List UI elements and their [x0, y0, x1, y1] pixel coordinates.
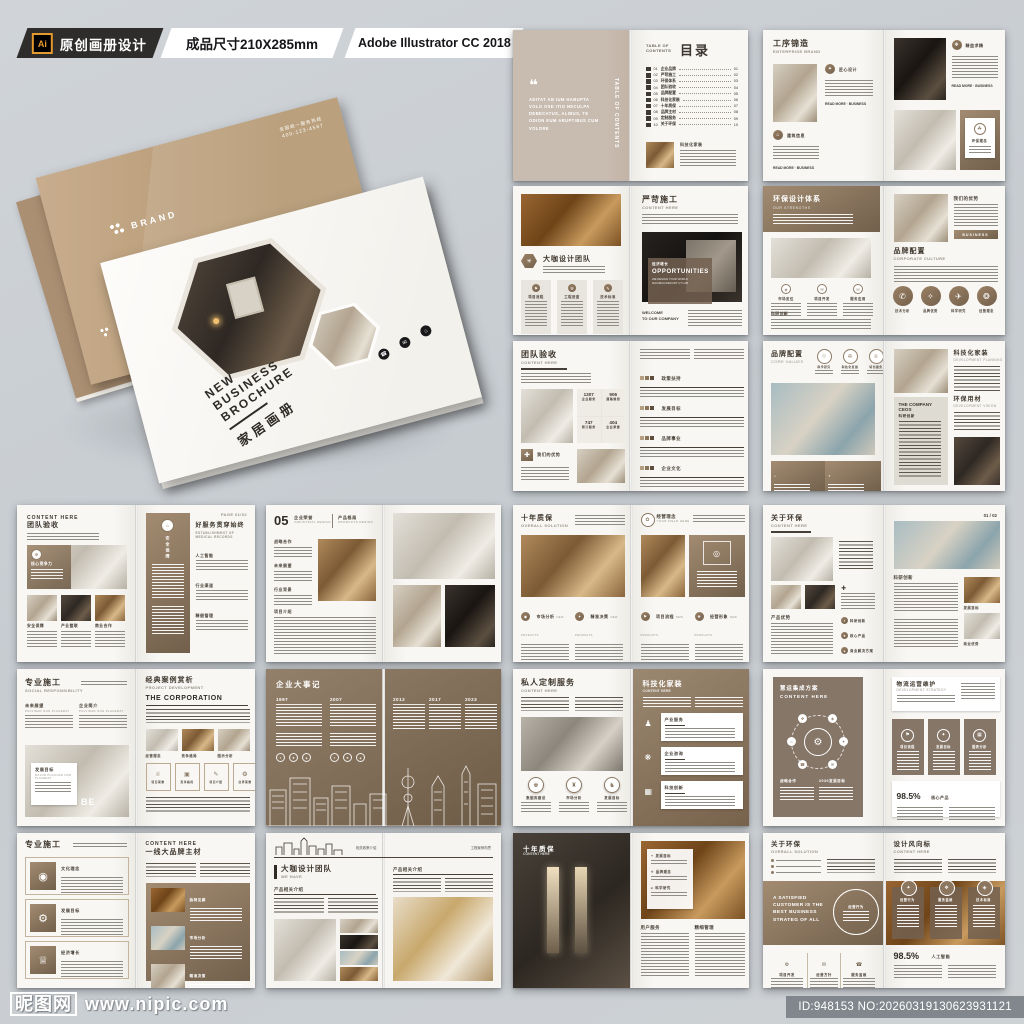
- toc-item-page: 06: [734, 98, 738, 102]
- solution-photo-left: 慧运集成方案 CONTENT HERE ⚙ ✦ ✉ ☎ ⌂ ❖ ◈ 战略合作 2…: [763, 669, 883, 826]
- about-eco-right: 01 / 02 科研创新 发展目标 商业优势: [886, 505, 1006, 662]
- overlay-label-cn: 经济增长: [652, 262, 708, 267]
- photo-thumb-2: [61, 595, 91, 621]
- header-brand-badge: Ai 原创画册设计: [17, 28, 164, 58]
- toc-leader: [679, 106, 731, 107]
- team-title: 大咖设计团队: [543, 256, 591, 264]
- page-number-label: PAGE 01/02: [221, 513, 247, 518]
- brand-culture-page: 我们的优势 BUSINESS 品牌配置 CORPORATE CULTURE ✆技…: [886, 186, 1006, 335]
- toc-leader: [679, 81, 731, 82]
- check-icon: ✦: [651, 854, 654, 858]
- caption-1: 发展目标: [964, 605, 980, 610]
- competitiveness-overlay: ❁ 核心竞争力: [27, 545, 71, 589]
- bullet-item: ✦科研创新: [841, 617, 873, 624]
- content-here-label: CONTENT HERE: [146, 841, 197, 847]
- phone-contact-icon: ☎: [376, 347, 391, 362]
- text-lines: [948, 965, 996, 979]
- city-skyline-art: [266, 760, 501, 826]
- product-intro-label: 产品相关介绍: [393, 867, 422, 873]
- plus-chip: ✚: [521, 449, 533, 461]
- photo-kitchen: [521, 194, 621, 246]
- percent-label: 核心产品: [931, 795, 949, 800]
- dev-icon: ⚙: [785, 962, 789, 968]
- consult-card: 企业咨询: [661, 747, 743, 775]
- cases-subtitle: PROJECT DEVELOPMENT: [146, 686, 204, 691]
- good-service-subtitle: ESTABLISHMENT OF MEDICAL RECORDS: [196, 532, 250, 540]
- toc-item-page: 04: [734, 86, 738, 90]
- section-label: 建筑信息: [787, 133, 805, 139]
- text-lines: [773, 146, 819, 160]
- chart-card: ▦ 图表分析: [964, 719, 996, 775]
- enterprise-title-cn: 工序锦造: [773, 40, 809, 49]
- gear-hub-icon: ⚙: [804, 728, 832, 756]
- header-group-2: 产品格局 PRODUCTS DESIGN: [338, 515, 373, 525]
- cover-hex-photo-frame-art: [226, 277, 264, 320]
- culture-circle: ❂经营理念: [976, 286, 998, 313]
- toc-row-marker: [646, 67, 651, 72]
- header-brand-label: 原创画册设计: [60, 33, 147, 53]
- photo-thumb-3: [95, 595, 125, 621]
- dev-column: ⚙项目开发: [771, 953, 803, 988]
- spread-design-trend: 关于环保 OVERALL SOLUTION A SATISFIED CUSTOM…: [763, 833, 1005, 988]
- header-size-badge: 成品尺寸210X285mm: [161, 28, 344, 58]
- text-lines: [27, 533, 99, 541]
- year-block: 1997: [276, 697, 322, 727]
- toc-row-marker: [646, 85, 651, 90]
- case-label-3: 图示分析: [218, 753, 234, 758]
- positioning-icon: ◈: [781, 284, 791, 294]
- section-number: 05: [274, 513, 288, 528]
- stats-grid: 1307企业服务 906道路规划 747预订服务 404企业荣誉: [577, 389, 625, 443]
- photo-mini-2: [340, 935, 378, 949]
- toc-item-label: 企业品牌: [661, 67, 676, 72]
- management-section-label: 精细管理: [695, 925, 715, 931]
- culture-circle: ✆技术分析: [892, 286, 914, 313]
- trend-left-page: 关于环保 OVERALL SOLUTION A SATISFIED CUSTOM…: [763, 833, 883, 988]
- toc-row-marker: [646, 98, 651, 103]
- research-icon: ♲: [817, 349, 832, 364]
- toc-item-label: 环保体系: [661, 79, 676, 84]
- photo-small-2: [805, 585, 835, 609]
- development-column: ✉ 项目开发: [807, 284, 837, 317]
- dark-feature-page: 十年质保 CONTENT HERE: [513, 833, 630, 988]
- photo-thumb-1: [27, 595, 57, 621]
- text-lines: [152, 564, 184, 598]
- philosophy-icon: ✿: [641, 513, 655, 527]
- toc-row-marker: [646, 92, 651, 97]
- about-eco-left: 关于环保 CONTENT HERE ✚ 产品优势 ✦科研创新 ❖核心产品 ◈商业…: [763, 505, 883, 662]
- brown-side-panel: ☘ 环保理念: [960, 110, 1000, 170]
- overlay-title-en: OPPORTUNITIES: [652, 269, 708, 275]
- toc-item-label: 十年质保: [661, 104, 676, 109]
- satisfied-banner: A SATISFIED CUSTOMER IS THE BEST BUSINES…: [763, 881, 883, 945]
- welcome-label: WELCOMETO OUR COMPANY: [642, 310, 679, 321]
- value-item: ♲科学研究: [815, 349, 833, 376]
- column-label: 项目开发: [807, 296, 837, 301]
- photo-loft-right: [641, 535, 685, 597]
- honor-icon: ♕: [155, 771, 160, 778]
- photo-banquet: [318, 539, 376, 601]
- check-icon: ❖: [651, 870, 654, 874]
- spread-eco-system: 环保设计体系 OUR STRENGTHS ◈ 市场定位 ✉ 项目开发 ☏ 服务应…: [763, 186, 1005, 335]
- text-lines: [521, 467, 569, 481]
- corporation-heading: THE CORPORATION: [146, 695, 223, 702]
- spread-integrated-solution: 慧运集成方案 CONTENT HERE ⚙ ✦ ✉ ☎ ⌂ ❖ ◈ 战略合作 2…: [763, 669, 1005, 826]
- policy-section: 品牌事业: [640, 427, 744, 459]
- management-section-label: 精细管理: [196, 613, 214, 619]
- toc-row-marker: [646, 73, 651, 78]
- text-lines: [641, 933, 689, 977]
- spread-service: CONTENT HERE 团队验收 ❁ 核心竞争力 安全保障 产业整联 商业合作…: [17, 505, 255, 662]
- text-lines: [575, 515, 625, 527]
- goal-icon: ✦: [937, 729, 950, 742]
- dot-icon: [771, 865, 774, 868]
- trend-card: ✦ 经营行为: [892, 887, 924, 939]
- spread-warranty-dark: 十年质保 CONTENT HERE ✦发展目标 ❖品牌理念 ◈科学研究 用户服务…: [513, 833, 749, 988]
- culture-circles: ✆技术分析 ✧品牌优势 ✈科学研究 ❂经营理念: [892, 286, 1002, 313]
- product-intro-label: 产品相关介绍: [274, 887, 303, 893]
- stat-cell: 747预订服务: [577, 417, 601, 444]
- smart-home-subtitle: DEVELOPMENT PLANNING: [954, 359, 1003, 363]
- flow-icon: ⚑: [641, 612, 650, 621]
- toc-title: 目录: [680, 40, 710, 59]
- photo-bright-living: [393, 897, 493, 981]
- nipic-site-name: 昵图网: [10, 992, 77, 1016]
- text-lines: [843, 303, 873, 317]
- warranty-subtitle: OVERALL SOLUTION: [521, 524, 568, 529]
- bullet-list: ✦科研创新 ❖核心产品 ◈商业解决方案: [841, 617, 873, 654]
- decision-icon: ✦: [575, 612, 584, 621]
- text-lines: [543, 266, 605, 275]
- photo-small-1: [771, 585, 801, 609]
- feature-box: ❂业界荣誉: [233, 763, 256, 791]
- pro-cards-page: 专业施工 ◉ 文化理念 ⚙ 发展目标 ♕ 经济增长: [17, 833, 135, 988]
- dot-icon: [771, 871, 774, 874]
- maintain-icon: ☎: [856, 962, 862, 968]
- text-lines: [954, 366, 1000, 392]
- service-circle: ♚ 数据库建设: [521, 777, 551, 812]
- section-label: 企业文化: [661, 466, 681, 471]
- classic-cases-page: 经典案例赏析 PROJECT DEVELOPMENT THE CORPORATI…: [138, 669, 256, 826]
- text-lines: [61, 631, 91, 649]
- medal-icon: ❂: [242, 771, 247, 778]
- core-values-title: 品牌配置: [771, 351, 803, 359]
- industry-card: 产业服务: [661, 713, 743, 741]
- section-label: 发展目标: [661, 406, 681, 411]
- toc-item-label: 品牌主材: [661, 110, 676, 115]
- text-lines: [894, 965, 942, 979]
- text-lines: [949, 807, 995, 821]
- spread-team-acceptance: 团队验收 CONTENT HERE 1307企业服务 906道路规划 747预订…: [513, 341, 748, 491]
- stat-cell: 906道路规划: [602, 389, 626, 416]
- header1-en: INDUSTRIAL DESIGN: [294, 521, 331, 525]
- service-section-label: 用户服务: [641, 925, 661, 931]
- spread-core-values: 品牌配置 CORE VALUES ♲科学研究 ✇科技化发展 ♕特色服务 ⌂ ✦ …: [763, 341, 1005, 491]
- text-lines: [95, 631, 125, 649]
- database-icon: ♚: [528, 777, 544, 793]
- eco-card: ☘ 环保理念: [965, 118, 995, 158]
- warranty-left-page: 十年质保 OVERALL SOLUTION ◉ 市场分析NEW PRODUCTS…: [513, 505, 630, 662]
- toc-item-page: 08: [734, 110, 738, 114]
- culture-circle: ✈科学研究: [948, 286, 970, 313]
- service-column: ☏ 服务应用: [843, 284, 873, 317]
- eco-title-en: OUR STRENGTHS: [773, 206, 870, 210]
- text-lines: [839, 541, 873, 571]
- toc-leader: [679, 118, 731, 119]
- toc-item-no: 05: [654, 92, 658, 96]
- brand-config-subtitle: CORPORATE CULTURE: [894, 257, 946, 262]
- year-block: 2012: [393, 697, 425, 731]
- text-lines: [196, 590, 248, 602]
- toc-item-no: 01: [654, 67, 658, 71]
- culture-circle: ✧品牌优势: [920, 286, 942, 313]
- text-lines: [196, 620, 248, 632]
- text-lines: [894, 859, 942, 873]
- toc-item-no: 06: [654, 98, 658, 102]
- photo-spa: [894, 521, 1000, 569]
- text-lines: [640, 349, 690, 361]
- custom-subtitle: CONTENT HERE: [521, 689, 557, 694]
- read-more-link: READ MORE · BUSINESS: [952, 84, 993, 88]
- text-lines: [897, 695, 955, 703]
- value-item: ✇科技化发展: [841, 349, 859, 376]
- strategy-panel: 物流运营维护 DEVELOPMENT STRATEGY: [892, 677, 1000, 711]
- text-lines: [680, 150, 736, 168]
- pattern-icon: ▣: [184, 771, 190, 778]
- toc-item-label: 严苛施工: [661, 73, 676, 78]
- acceptance-title: 团队验收: [27, 522, 59, 530]
- construction-title-cn: 严苛施工: [642, 196, 678, 205]
- text-lines: [276, 733, 322, 747]
- case-photo-1: [146, 729, 178, 751]
- text-lines: [31, 569, 63, 581]
- read-more-link: READ MORE · BUSINESS: [825, 102, 866, 106]
- check-item: ✦发展目标: [651, 853, 689, 858]
- title-rule: [521, 368, 567, 370]
- analysis-column: ◉ 市场分析NEW PRODUCTS: [521, 605, 569, 662]
- nipic-watermark: 昵图网www.nipic.com: [10, 990, 228, 1016]
- coop-label: 战略合作: [780, 779, 796, 784]
- standard-icon: ✎: [604, 284, 612, 292]
- text-lines: [894, 619, 958, 649]
- text-lines: [597, 301, 619, 327]
- bullet-item: ◈商业解决方案: [841, 647, 873, 654]
- header-divider: [332, 514, 333, 528]
- cover-mockup: BRAND 全国统一服务热线 400-123-4567 ☎ ✉ ⌂ NEW BU…: [28, 92, 504, 504]
- vision-subsection: 未来展望 PULVINAR NON PLACERAT: [25, 703, 75, 729]
- bullet-item: ❖核心产品: [841, 632, 873, 639]
- text-lines: [771, 623, 833, 655]
- text-lines: [819, 787, 853, 801]
- text-lines: [146, 863, 196, 877]
- year-block: 2017: [429, 697, 461, 731]
- eco-material-subtitle: DEVELOPMENT VISION: [954, 405, 997, 409]
- stat-cell: 1307企业服务: [577, 389, 601, 416]
- photo-wood-kitchen: ✦发展目标 ❖品牌理念 ◈科学研究: [641, 841, 745, 919]
- maintain-column: ☎服务监维: [843, 953, 875, 988]
- text-lines: [952, 56, 998, 78]
- image-icon: ❖: [695, 612, 704, 621]
- opportunities-overlay: 经济增长 OPPORTUNITIES WE DESIGN YOUR WORLD …: [648, 258, 712, 304]
- team-intro-right: 产品相关介绍: [385, 833, 501, 988]
- team-intro-left: 大咖设计团队 WE HAVE 产品相关介绍: [266, 833, 382, 988]
- photo-studio-desk: [274, 919, 336, 981]
- brand-dots-logo: [108, 221, 128, 241]
- strategy-wheel: 经营行为: [833, 889, 879, 935]
- title-rule: [771, 531, 811, 533]
- photo-staircase: [521, 389, 573, 443]
- text-lines: [773, 214, 853, 226]
- company-title: THE COMPANY CEOS: [899, 402, 943, 412]
- toc-item-page: 02: [734, 73, 738, 77]
- section-rule: [640, 447, 744, 448]
- wall-slat-glow: [575, 867, 587, 953]
- text-lines: [146, 797, 250, 813]
- industry-icon: ♟: [645, 719, 652, 728]
- toc-rows: 01企业品牌01 02严苛施工02 03环保体系03 04团队验收04 05品牌…: [646, 66, 738, 128]
- column-label: 市场定位: [771, 296, 801, 301]
- solution-photo-right: 物流运营维护 DEVELOPMENT STRATEGY ⚑ 项目流程 ✦ 发展目…: [886, 669, 1006, 826]
- text-lines: [328, 898, 378, 914]
- toc-item-no: 08: [654, 110, 658, 114]
- text-lines: [695, 933, 745, 977]
- text-lines: [330, 733, 376, 747]
- photo-side-2: [964, 613, 1000, 639]
- smart-home-title: 科技化家装: [954, 351, 989, 358]
- photo-wood-band: ✦ 经营行为 ❖ 服务监维 ◈ 技术标准: [886, 881, 1006, 945]
- text-lines: [697, 571, 737, 589]
- spread-custom-service: 私人定制服务 CONTENT HERE ♚ 数据库建设 ♜ 市场分析 ♞ 发展目…: [513, 669, 749, 826]
- spread-brand-materials: 专业施工 ◉ 文化理念 ⚙ 发展目标 ♕ 经济增长 CONTENT HERE 一…: [17, 833, 255, 988]
- policy-section: 政策扶持: [640, 367, 744, 399]
- swatch-row: [640, 376, 654, 380]
- section-label: 匠心设计: [839, 67, 857, 73]
- cases-title: 经典案例赏析: [146, 677, 194, 685]
- card-circle-icon: ✦: [901, 880, 917, 896]
- core-values-subtitle: CORE VALUES: [771, 360, 804, 365]
- photo-stair-living: [771, 238, 871, 278]
- research-label: 科研创新: [894, 575, 914, 581]
- wheel-label: 经营行为: [848, 904, 864, 909]
- image-id-badge: ID:948153 NO:20260319130623931121: [786, 996, 1024, 1018]
- case-photo-2: [182, 729, 214, 751]
- toc-item-page: 05: [734, 92, 738, 96]
- banner-text: A SATISFIED CUSTOMER IS THE BEST BUSINES…: [773, 895, 825, 924]
- solution-title-cn: 慧运集成方案: [780, 684, 856, 692]
- vision-section: 未来展望: [274, 563, 312, 583]
- text-lines: [643, 697, 691, 707]
- materials-panel: 独特见解 市场分析 精准决策: [146, 883, 250, 981]
- service-circle: ♜ 市场分析: [559, 777, 589, 812]
- toc-row-marker: [646, 123, 651, 128]
- trophy-icon: ♕: [30, 946, 56, 974]
- text-lines: [948, 859, 996, 873]
- thumb-label-3: 商业合作: [95, 624, 112, 629]
- node-icon: ✉: [828, 760, 837, 769]
- toc-leader: [679, 112, 731, 113]
- analysis-icon: ◉: [521, 612, 530, 621]
- brand-config-title: 品牌配置: [894, 248, 926, 256]
- value-item: ♕特色服务: [867, 349, 883, 376]
- photo-dining: [773, 64, 817, 122]
- web-contact-icon: ⌂: [418, 323, 433, 338]
- toc-item-no: 02: [654, 73, 658, 77]
- spread-warranty: 十年质保 OVERALL SOLUTION ◉ 市场分析NEW PRODUCTS…: [513, 505, 749, 662]
- tech-icon: ✇: [843, 349, 858, 364]
- service-icon: ☏: [853, 284, 863, 294]
- section-rule: [274, 894, 376, 895]
- check-item: ◈科学研究: [651, 885, 689, 890]
- photo-dark-bedroom: [954, 437, 1000, 485]
- material-photo: [151, 926, 185, 950]
- toc-item-label: 团队验收: [661, 85, 676, 90]
- toc-item-page: 07: [734, 104, 738, 108]
- process-icon: ⚑: [532, 284, 540, 292]
- bullet-icon: ◈: [841, 647, 848, 654]
- year-block: 2007: [330, 697, 376, 727]
- overlay-label: 核心竞争力: [31, 562, 67, 567]
- mail-contact-icon: ✉: [397, 335, 412, 350]
- read-more-link: READ MORE · BUSINESS: [773, 166, 814, 170]
- header-software-badge: Adobe Illustrator CC 2018: [345, 28, 524, 58]
- photo-bedroom: [894, 194, 948, 242]
- text-lines: [152, 606, 184, 636]
- section-label: 政策扶持: [661, 376, 681, 381]
- badge-box: ◎: [703, 541, 731, 565]
- brand-dots-logo-small: [99, 326, 114, 341]
- percent-value: 98.5%: [897, 791, 921, 801]
- text-lines: [274, 617, 376, 655]
- text-lines: [642, 214, 738, 226]
- text-lines: [694, 349, 744, 361]
- toc-item-label: 定制服务: [661, 116, 676, 121]
- advantage-label: 我们的优势: [537, 452, 560, 458]
- policy-section: 企业文化: [640, 457, 744, 489]
- network-diagram: ⚙ ✦ ✉ ☎ ⌂ ❖ ◈: [787, 711, 847, 771]
- node-icon: ✦: [839, 737, 848, 746]
- toc-item-no: 07: [654, 104, 658, 108]
- section-rule: [640, 387, 744, 388]
- case-label-1: 经营理念: [146, 753, 162, 758]
- text-lines: [843, 911, 869, 921]
- material-row: 独特见解: [151, 888, 245, 922]
- image-column: ❖ 经营形象NEW PRODUCTS: [695, 605, 743, 662]
- trend-title: 设计风向标: [894, 841, 932, 848]
- thumb-label-1: 安全保障: [27, 624, 44, 629]
- channel-section-label: 行业渠道: [196, 583, 214, 589]
- text-lines: [445, 878, 493, 892]
- eco-icon: ☘: [974, 123, 986, 135]
- banner-right: ✦: [825, 461, 881, 491]
- warranty-right-page: ✿ 经营理念 YOUR FIELD HERE ◎ ⚑ 项目流程NEW PRODU…: [633, 505, 750, 662]
- progress-column: ⚒ 工程进度: [557, 280, 587, 334]
- toc-row: 10关于环保10: [646, 122, 738, 128]
- about-eco-title: 关于环保: [771, 515, 803, 523]
- team-hex-icon: ✳: [521, 254, 537, 268]
- pro-construction-page: 专业施工 SOCIAL RESPONSIBILITY 未来展望 PULVINAR…: [17, 669, 135, 826]
- text-lines: [894, 583, 958, 613]
- warranty-title: 十年质保: [521, 515, 553, 523]
- innovation-icon: ▦: [645, 787, 653, 796]
- percent-label: 人工智能: [932, 954, 951, 960]
- text-lines: [146, 709, 250, 723]
- trend-right-page: 设计风向标 CONTENT HERE ✦ 经营行为 ❖ 服务监维 ◈ 技术标准 …: [886, 833, 1006, 988]
- bulb-icon: ✧: [921, 286, 941, 306]
- culture-card: ◉ 文化理念: [25, 857, 129, 895]
- heading-rule: [146, 705, 248, 706]
- photo-floorplan-3d: 经济增长 OPPORTUNITIES WE DESIGN YOUR WORLD …: [642, 232, 742, 302]
- text-lines: [274, 898, 324, 914]
